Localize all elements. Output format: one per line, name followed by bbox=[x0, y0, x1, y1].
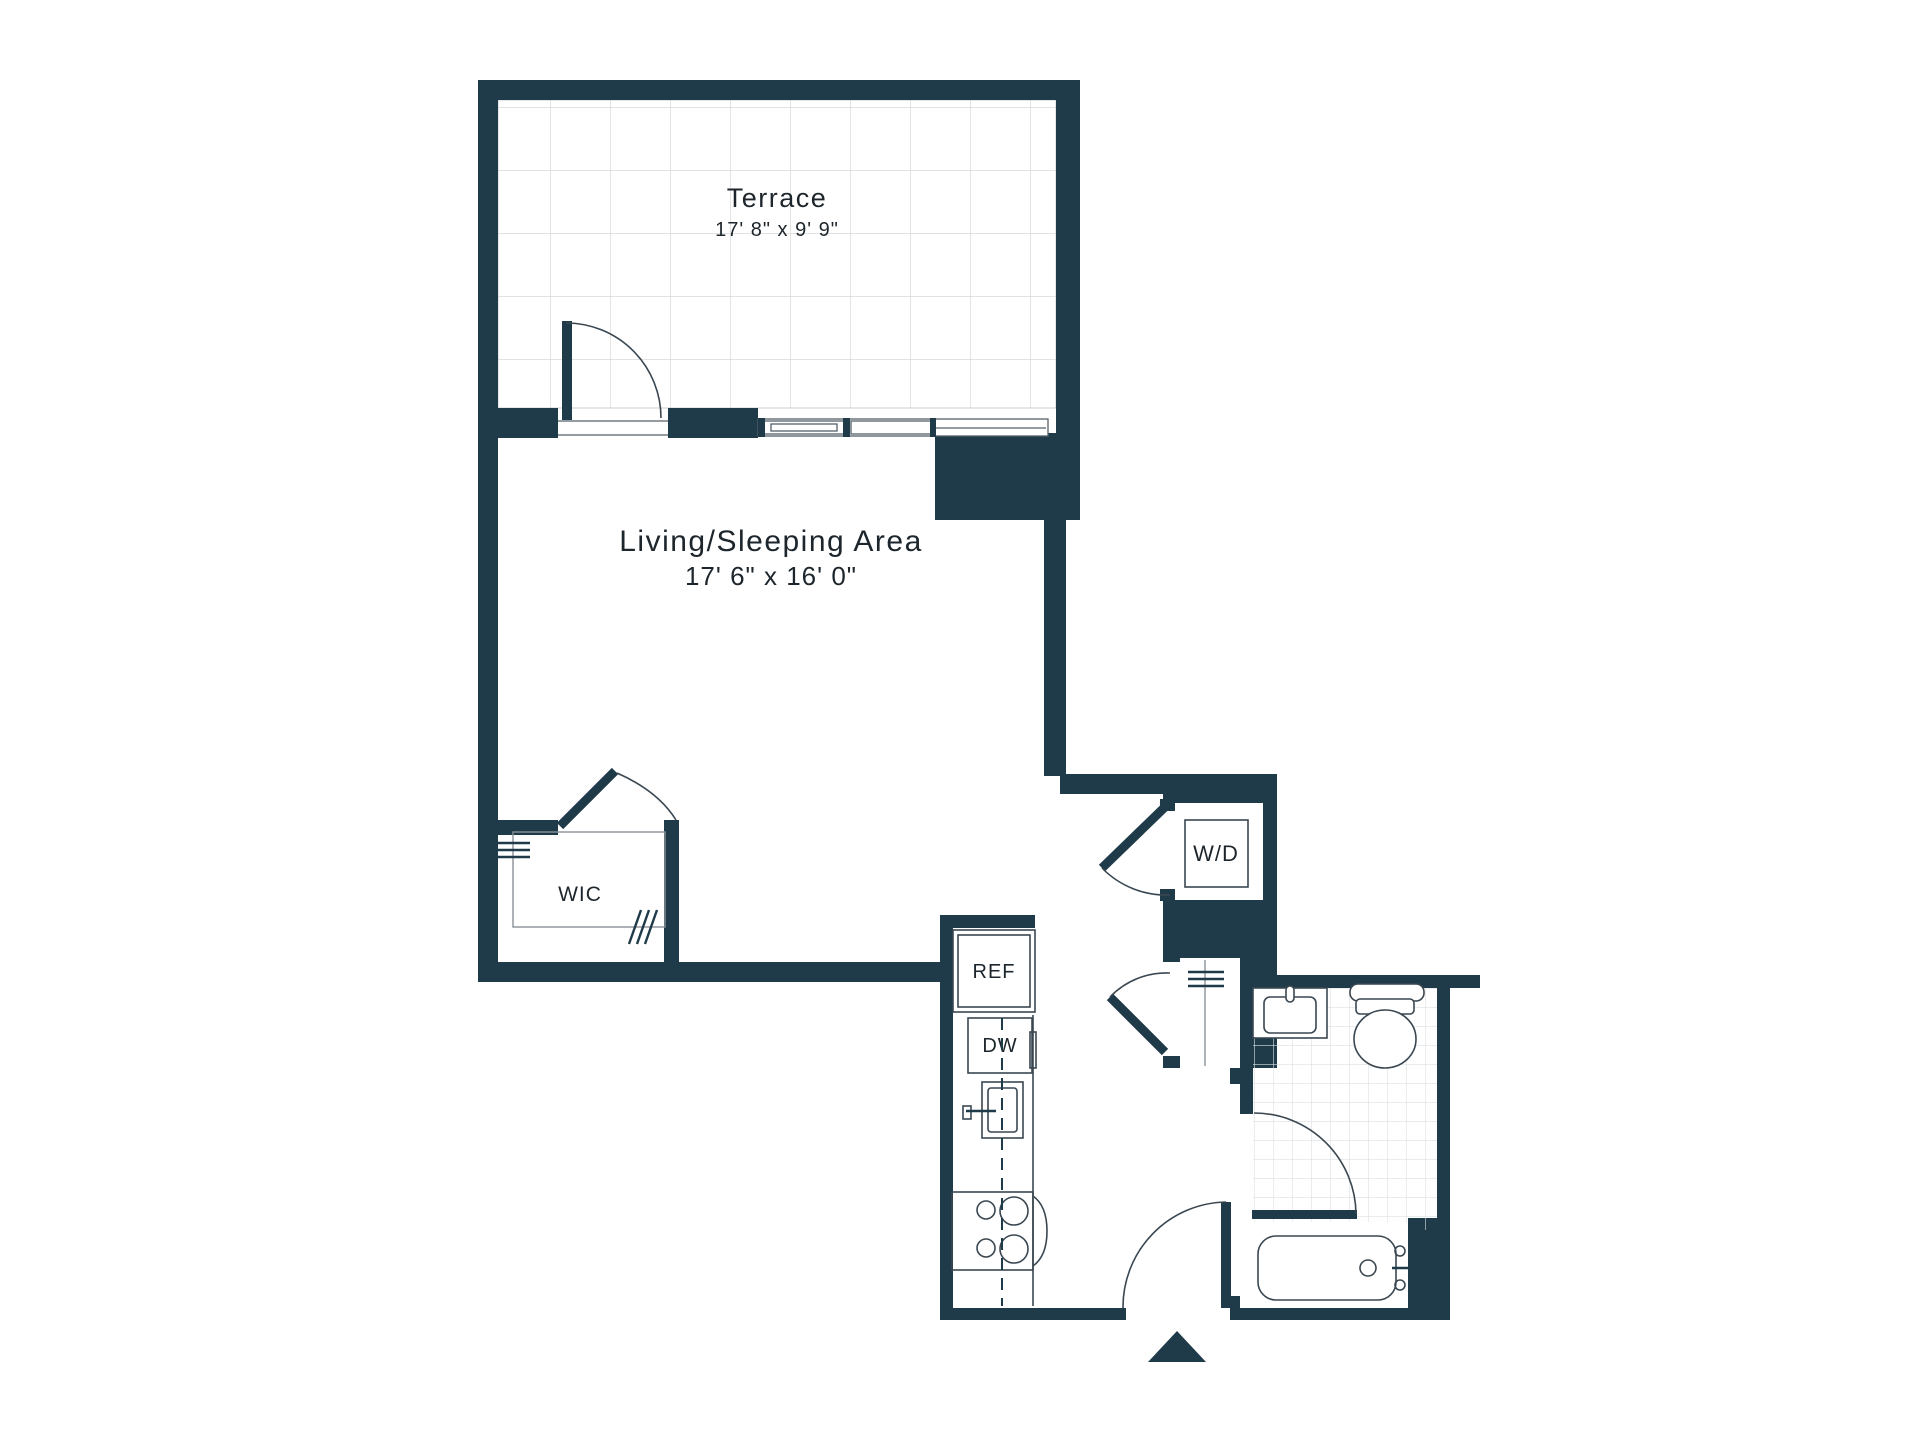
burner-large-1 bbox=[1000, 1197, 1028, 1225]
kitchen: REF DW bbox=[952, 930, 1047, 1306]
entry-arrow-icon bbox=[1148, 1331, 1206, 1362]
stove-bull-nose bbox=[1033, 1196, 1047, 1266]
stove bbox=[952, 1192, 1047, 1270]
wall-bath-right bbox=[1437, 975, 1450, 1220]
living-windows bbox=[758, 418, 1048, 437]
wall-wic-top bbox=[478, 820, 558, 835]
wall-bath-bottom bbox=[1230, 1308, 1450, 1320]
burner-small-1 bbox=[977, 1201, 995, 1219]
living-label: Living/Sleeping Area bbox=[619, 525, 923, 558]
closet-niche-jamb-top bbox=[1163, 950, 1180, 962]
wall-alcove-top bbox=[1060, 774, 1172, 794]
terrace-door-leaf bbox=[562, 321, 572, 420]
entry-door-swing-arc bbox=[1123, 1202, 1226, 1308]
wall-wic-right bbox=[664, 820, 679, 962]
wall-tub-corner-block bbox=[1408, 1218, 1450, 1318]
living-area: Living/Sleeping Area 17' 6" x 16' 0" bbox=[619, 525, 923, 591]
kitchen-sink bbox=[963, 1082, 1023, 1138]
wall-terrace-bottom-mid bbox=[668, 408, 758, 438]
floor-plan-page: Terrace 17' 8" x 9' 9" bbox=[0, 0, 1920, 1440]
terrace: Terrace 17' 8" x 9' 9" bbox=[498, 100, 1056, 408]
hall-closet-door-leaf bbox=[1110, 997, 1165, 1052]
wall-living-right bbox=[1044, 520, 1066, 776]
wall-bath-left-upper bbox=[1240, 1068, 1253, 1114]
terrace-dimensions: 17' 8" x 9' 9" bbox=[715, 219, 839, 241]
wall-column-block bbox=[935, 433, 1080, 520]
wall-kitchen-bottom bbox=[940, 1308, 1126, 1320]
window-mullion-1 bbox=[758, 418, 765, 437]
window-2 bbox=[851, 421, 931, 434]
wall-left bbox=[478, 80, 498, 982]
vanity-faucet bbox=[1286, 986, 1294, 1002]
wall-terrace-top bbox=[478, 80, 1080, 100]
window-mullion-2 bbox=[843, 418, 850, 437]
sink-faucet-base bbox=[963, 1106, 971, 1119]
living-dimensions: 17' 6" x 16' 0" bbox=[685, 561, 857, 591]
bathtub bbox=[1258, 1236, 1410, 1300]
wic-closet: WIC bbox=[496, 771, 676, 944]
terrace-door-threshold bbox=[558, 419, 668, 437]
bathroom-door-leaf bbox=[1252, 1210, 1357, 1219]
entry-door-leaf bbox=[1221, 1202, 1231, 1308]
terrace-label: Terrace bbox=[727, 183, 828, 213]
wall-kitchen-top bbox=[940, 915, 1035, 928]
floor-plan: Terrace 17' 8" x 9' 9" bbox=[0, 0, 1920, 1440]
toilet-bowl bbox=[1354, 1010, 1416, 1068]
washer-dryer-label: W/D bbox=[1193, 841, 1239, 866]
wd-door-swing-arc bbox=[1102, 868, 1170, 895]
window-mullion-3 bbox=[930, 418, 936, 437]
refrigerator-label: REF bbox=[973, 961, 1016, 983]
terrace-floor-grid bbox=[498, 100, 1056, 408]
wic-outline bbox=[513, 832, 665, 927]
wic-door-leaf bbox=[560, 771, 615, 826]
window-1-inner bbox=[771, 424, 837, 431]
hall-closet-door-swing-arc bbox=[1110, 973, 1170, 997]
wall-bath-left-stub bbox=[1230, 1068, 1240, 1084]
dishwasher-label: DW bbox=[982, 1035, 1017, 1057]
entry-jamb-stub bbox=[1230, 1296, 1240, 1310]
wall-terrace-right bbox=[1056, 80, 1080, 440]
closet-niche-jamb-bottom bbox=[1163, 1056, 1180, 1068]
entry bbox=[1123, 1202, 1231, 1362]
wall-terrace-bottom-left bbox=[478, 408, 558, 438]
wall-living-bottom bbox=[478, 962, 954, 982]
hall-closet-niche bbox=[1163, 958, 1240, 1068]
wd-door-leaf bbox=[1102, 806, 1166, 868]
wic-label: WIC bbox=[558, 883, 602, 906]
wic-door-swing-arc bbox=[617, 773, 676, 820]
burner-large-2 bbox=[1000, 1235, 1028, 1263]
burner-small-2 bbox=[977, 1239, 995, 1257]
bathroom-vanity bbox=[1253, 986, 1327, 1038]
